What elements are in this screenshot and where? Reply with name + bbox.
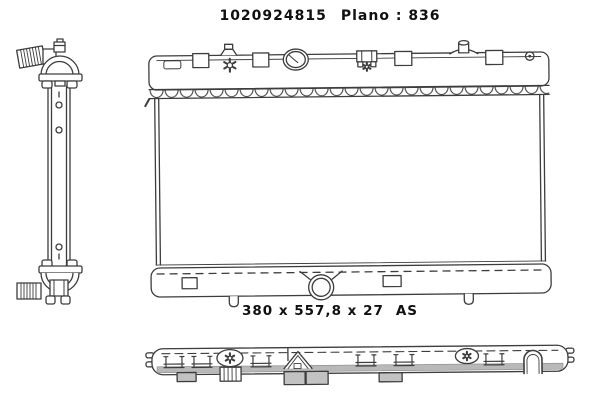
tank-block [395,51,412,65]
tank-block [253,53,269,67]
size-text: 380 x 557,8 x 27 [242,303,384,319]
vent-nipple [450,40,478,53]
tank-block [383,275,401,286]
bottom-tank [151,264,551,308]
column-hole [56,102,62,108]
radiator-technical-drawing [0,0,600,400]
side-column [48,86,70,268]
filler-cap [283,49,308,70]
ribbed-block [220,367,241,381]
elbow-block [50,280,68,296]
top-tank [149,40,549,90]
tank-block [193,53,209,67]
size-suffix: AS [396,303,418,319]
star-boss [455,348,478,363]
ribbed-hose-end-icon [17,46,46,68]
dome-port [524,350,542,373]
top-crimp-band [145,85,549,106]
hose-connector-top [17,39,82,88]
ribbed-hose-end-icon [17,283,41,299]
flange [39,74,82,81]
column-hole [56,244,62,250]
dimensions-label: 380 x 557,8 x 27 AS [110,303,550,319]
star-boss [217,350,243,367]
shaded-pad [306,371,328,384]
core [154,95,546,265]
shaded-pad [379,373,402,382]
radiator-drawing-page: 1020924815 Plano : 836 [0,0,600,400]
side-view [17,39,82,304]
tank-block [182,278,197,289]
vent-cylinder [54,42,65,52]
shaded-pad [177,372,196,381]
shaded-pad [284,371,305,384]
front-view [145,40,552,308]
tank-block [486,50,503,64]
bottom-view [146,345,574,386]
hose-connector-bottom [17,260,82,304]
flange [39,266,82,273]
column-hole [56,127,62,133]
